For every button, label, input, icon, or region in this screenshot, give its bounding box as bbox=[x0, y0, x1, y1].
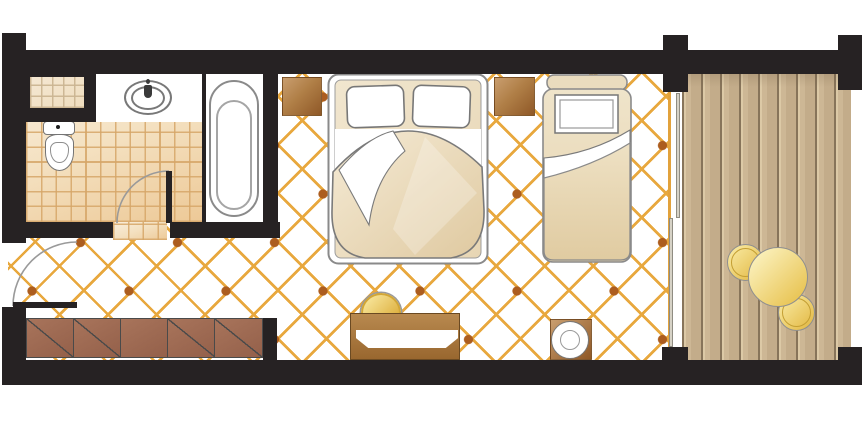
bathroom-door-swing-arc bbox=[112, 168, 174, 226]
balcony-round-table bbox=[748, 247, 808, 307]
wardrobe-panel bbox=[120, 318, 169, 358]
entry-door-leaf bbox=[13, 302, 77, 308]
balcony-pier-southwest bbox=[662, 347, 688, 385]
bathroom-wall-south-right bbox=[170, 222, 280, 238]
faucet-knob bbox=[146, 79, 150, 84]
headboard bbox=[547, 75, 627, 90]
balcony-wood-decking bbox=[682, 73, 851, 360]
bathroom-wall-south-left bbox=[2, 222, 113, 238]
pillow-left bbox=[346, 85, 404, 128]
faucet-icon bbox=[144, 85, 152, 98]
wall-south bbox=[2, 360, 862, 385]
toilet-flush-button bbox=[56, 125, 60, 129]
wall-north bbox=[2, 50, 851, 74]
wardrobe-panel bbox=[167, 318, 216, 358]
double-bed bbox=[327, 73, 489, 265]
single-bed bbox=[541, 72, 633, 264]
side-table-inner-ring bbox=[560, 330, 580, 350]
desk-drawer-front bbox=[356, 330, 458, 348]
nightstand-left bbox=[282, 77, 322, 116]
wardrobe-panel bbox=[214, 318, 263, 358]
bathroom-door-leaf bbox=[166, 171, 172, 223]
bathtub-basin bbox=[216, 100, 252, 210]
pillow bbox=[555, 95, 618, 133]
wardrobe bbox=[27, 318, 263, 358]
pillow-right bbox=[412, 85, 470, 128]
wardrobe-panel bbox=[26, 318, 75, 358]
balcony-pier-northwest bbox=[663, 35, 688, 92]
sliding-door-panel-upper bbox=[676, 93, 680, 218]
balcony-pier-southeast bbox=[838, 347, 862, 385]
wardrobe-panel bbox=[73, 318, 122, 358]
nightstand-shared bbox=[494, 77, 535, 116]
sliding-door-panel-lower bbox=[669, 218, 673, 347]
floor-plan bbox=[0, 0, 863, 422]
wall-west-upper bbox=[2, 33, 26, 243]
bathroom-wall-east bbox=[263, 73, 278, 238]
wardrobe-pier bbox=[263, 318, 277, 364]
counter-tub-divider-wall bbox=[202, 74, 206, 222]
tiled-niche bbox=[30, 77, 84, 108]
balcony-pier-northeast bbox=[838, 35, 862, 90]
entry-door-swing-arc bbox=[10, 240, 80, 308]
